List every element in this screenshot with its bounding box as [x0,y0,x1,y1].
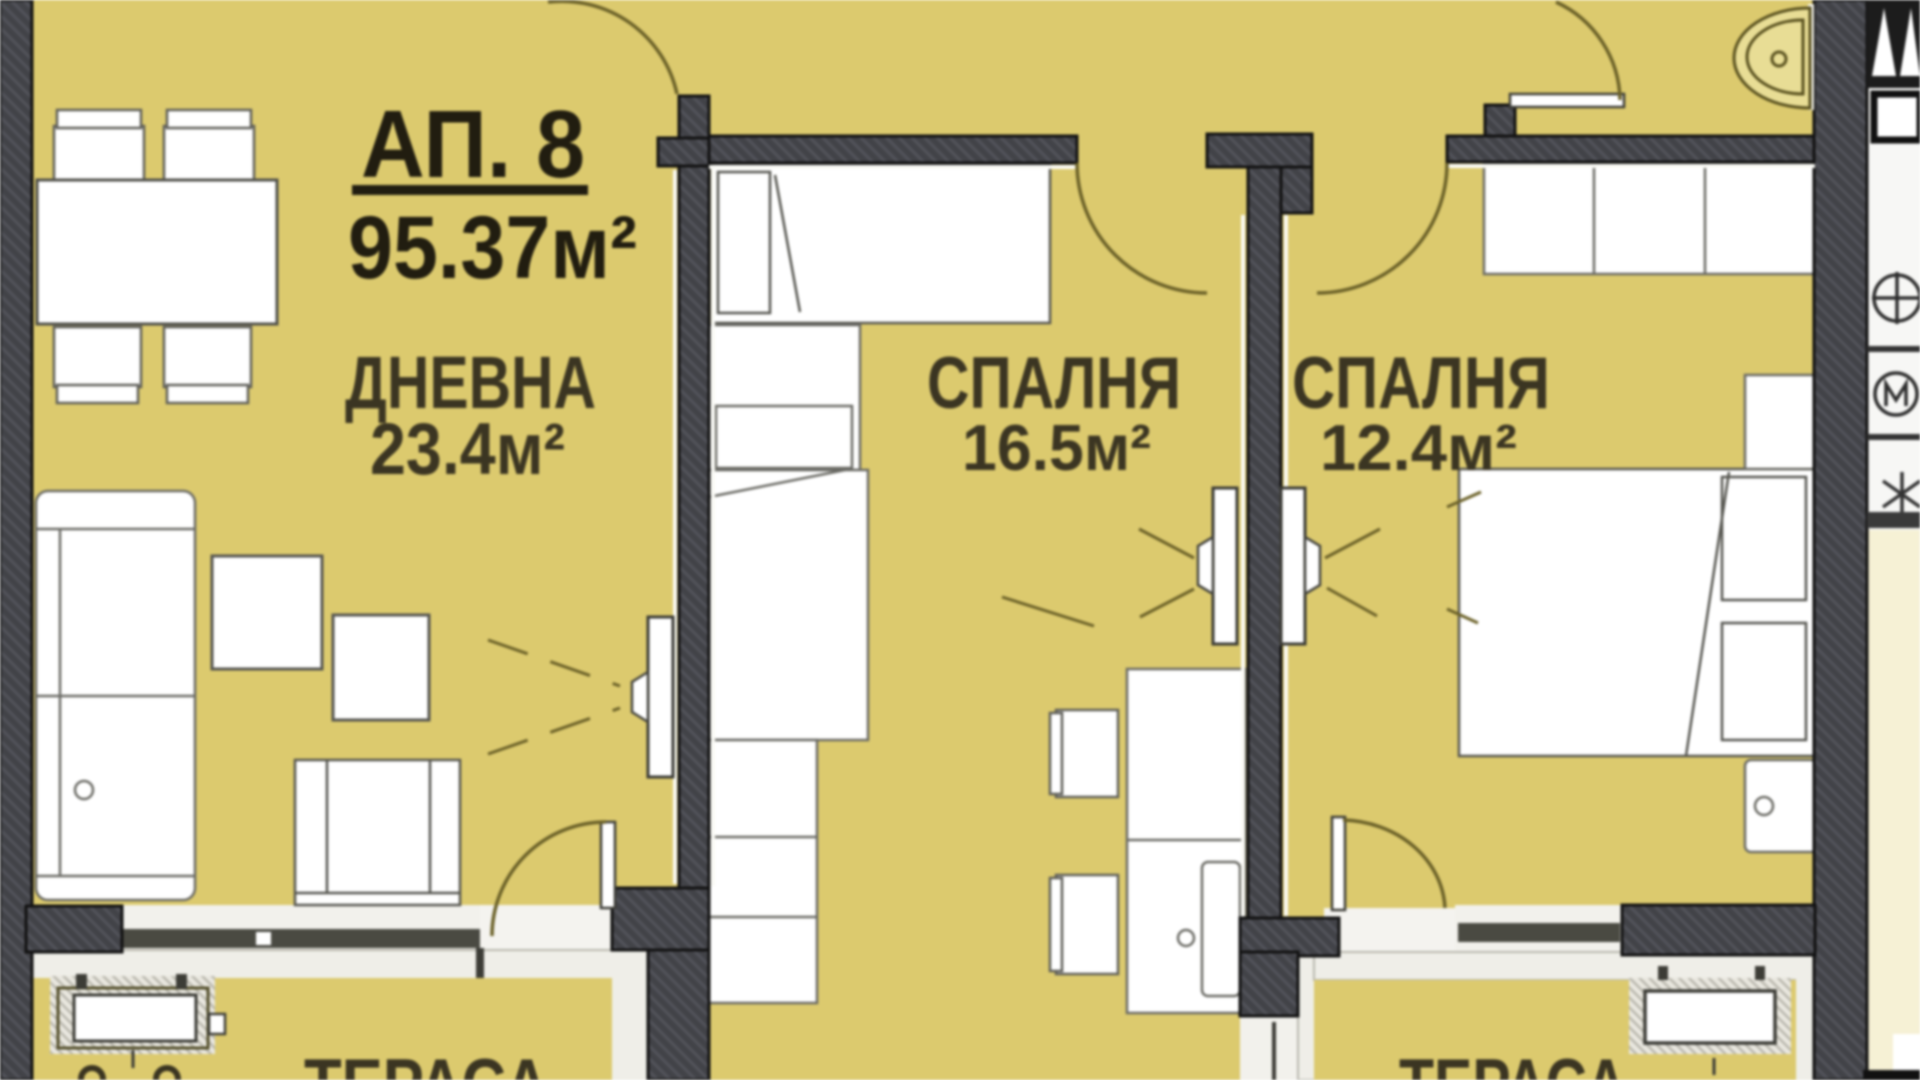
svg-text:ТЕРАСА: ТЕРАСА [304,1045,549,1080]
svg-text:АП. 8: АП. 8 [361,91,585,198]
svg-text:ТЕРАСА: ТЕРАСА [1399,1045,1627,1080]
svg-text:12.4м²: 12.4м² [1320,411,1517,484]
svg-text:23.4м²: 23.4м² [370,409,565,490]
svg-text:16.5м²: 16.5м² [962,411,1151,484]
svg-text:95.37м²: 95.37м² [348,197,637,297]
